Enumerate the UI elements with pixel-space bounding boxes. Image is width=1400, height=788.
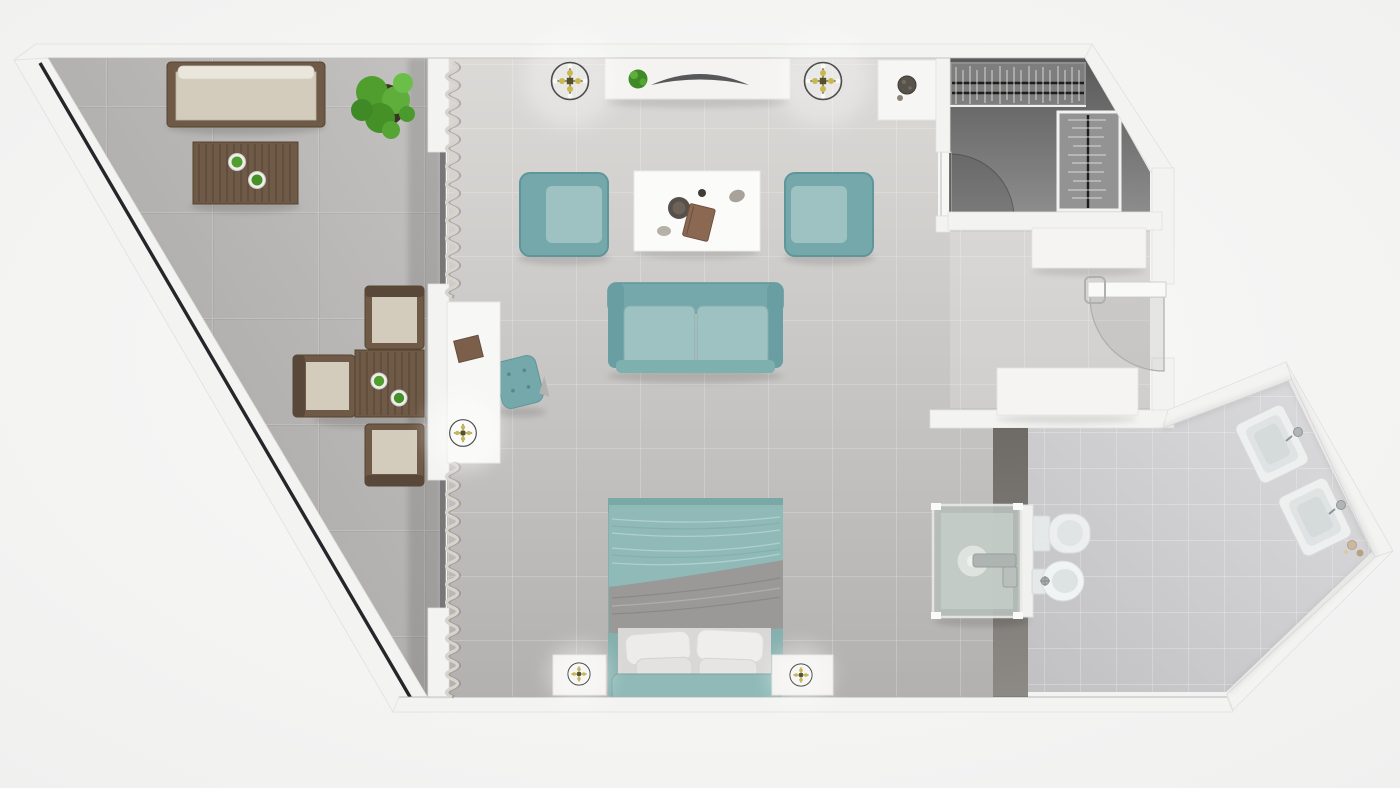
ceiling-lamp-icon: [552, 63, 589, 100]
headboard: [612, 674, 779, 700]
shower-control: [1003, 567, 1017, 587]
window-pier-top: [428, 58, 449, 152]
dining-table: [355, 350, 424, 417]
door-panel: [1088, 282, 1166, 297]
dining-chair-bottom: [365, 424, 424, 486]
bedside-lamp-icon: [568, 663, 590, 685]
closet-rail-top: [950, 62, 1086, 106]
entry-console: [997, 368, 1138, 415]
floor-plan-page: Hotel suite floor plan — top-down 3D ren…: [0, 0, 1400, 788]
desk-lamp-icon: [450, 420, 477, 447]
daybed: [167, 62, 325, 127]
dining-chair-left: [293, 355, 355, 417]
sink-faucet: [1337, 501, 1346, 510]
armchair-left: [520, 173, 608, 256]
dining-chair-top: [365, 286, 424, 349]
shower-arm: [973, 554, 1016, 567]
closet-left-wall: [936, 58, 950, 152]
bed: [608, 498, 783, 700]
side-table: [878, 60, 936, 120]
armchair-right: [785, 173, 873, 256]
tv-console: [605, 57, 790, 99]
sink-faucet: [1294, 428, 1303, 437]
bedside-lamp-icon: [790, 664, 812, 686]
closet-bottom-wall: [948, 212, 1162, 230]
balcony-coffee-table: [193, 142, 298, 204]
closet-rail-right: [1058, 112, 1120, 210]
plant-pot: [898, 76, 916, 94]
ceiling-lamp-icon: [805, 63, 842, 100]
floor-plan-render: [0, 0, 1400, 788]
entry-cabinet: [1032, 228, 1146, 268]
coffee-table: [634, 171, 760, 251]
shower: [931, 503, 1033, 627]
toilet: [1033, 514, 1090, 553]
